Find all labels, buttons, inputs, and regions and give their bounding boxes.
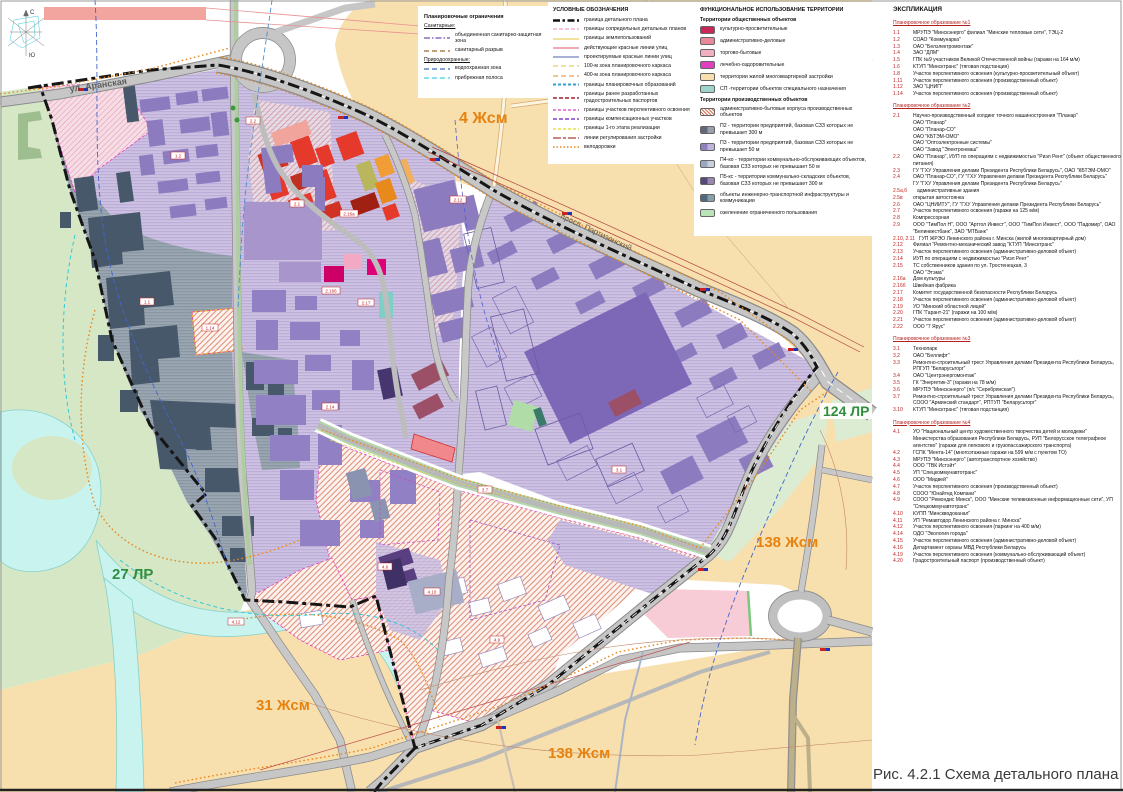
svg-text:2.17: 2.17 [362,301,371,306]
svg-text:138 Жсм: 138 Жсм [756,534,818,551]
svg-text:4.9: 4.9 [494,638,501,643]
svg-text:2.1: 2.1 [294,202,301,207]
svg-text:4.6: 4.6 [382,565,389,570]
svg-text:2.12: 2.12 [454,198,463,203]
svg-text:27 ЛР: 27 ЛР [112,566,153,583]
svg-text:1.2: 1.2 [175,154,182,159]
svg-text:3.7: 3.7 [482,488,489,493]
svg-text:4.12: 4.12 [232,620,241,625]
svg-text:С: С [30,10,35,16]
svg-text:1.14: 1.14 [206,326,215,331]
svg-text:31 Жсм: 31 Жсм [256,697,310,714]
svg-text:2.166: 2.166 [325,289,337,294]
svg-text:3.1: 3.1 [616,468,623,473]
svg-text:2.2: 2.2 [250,119,257,124]
svg-text:4 Жсм: 4 Жсм [459,110,508,127]
svg-text:138 Жсм: 138 Жсм [548,745,610,762]
svg-text:2.16а: 2.16а [343,212,355,217]
svg-text:Ю: Ю [29,53,35,59]
svg-text:2.14: 2.14 [326,405,335,410]
svg-text:4.10: 4.10 [428,590,437,595]
svg-text:124 ЛР: 124 ЛР [823,403,869,419]
svg-text:1.1: 1.1 [144,300,151,305]
